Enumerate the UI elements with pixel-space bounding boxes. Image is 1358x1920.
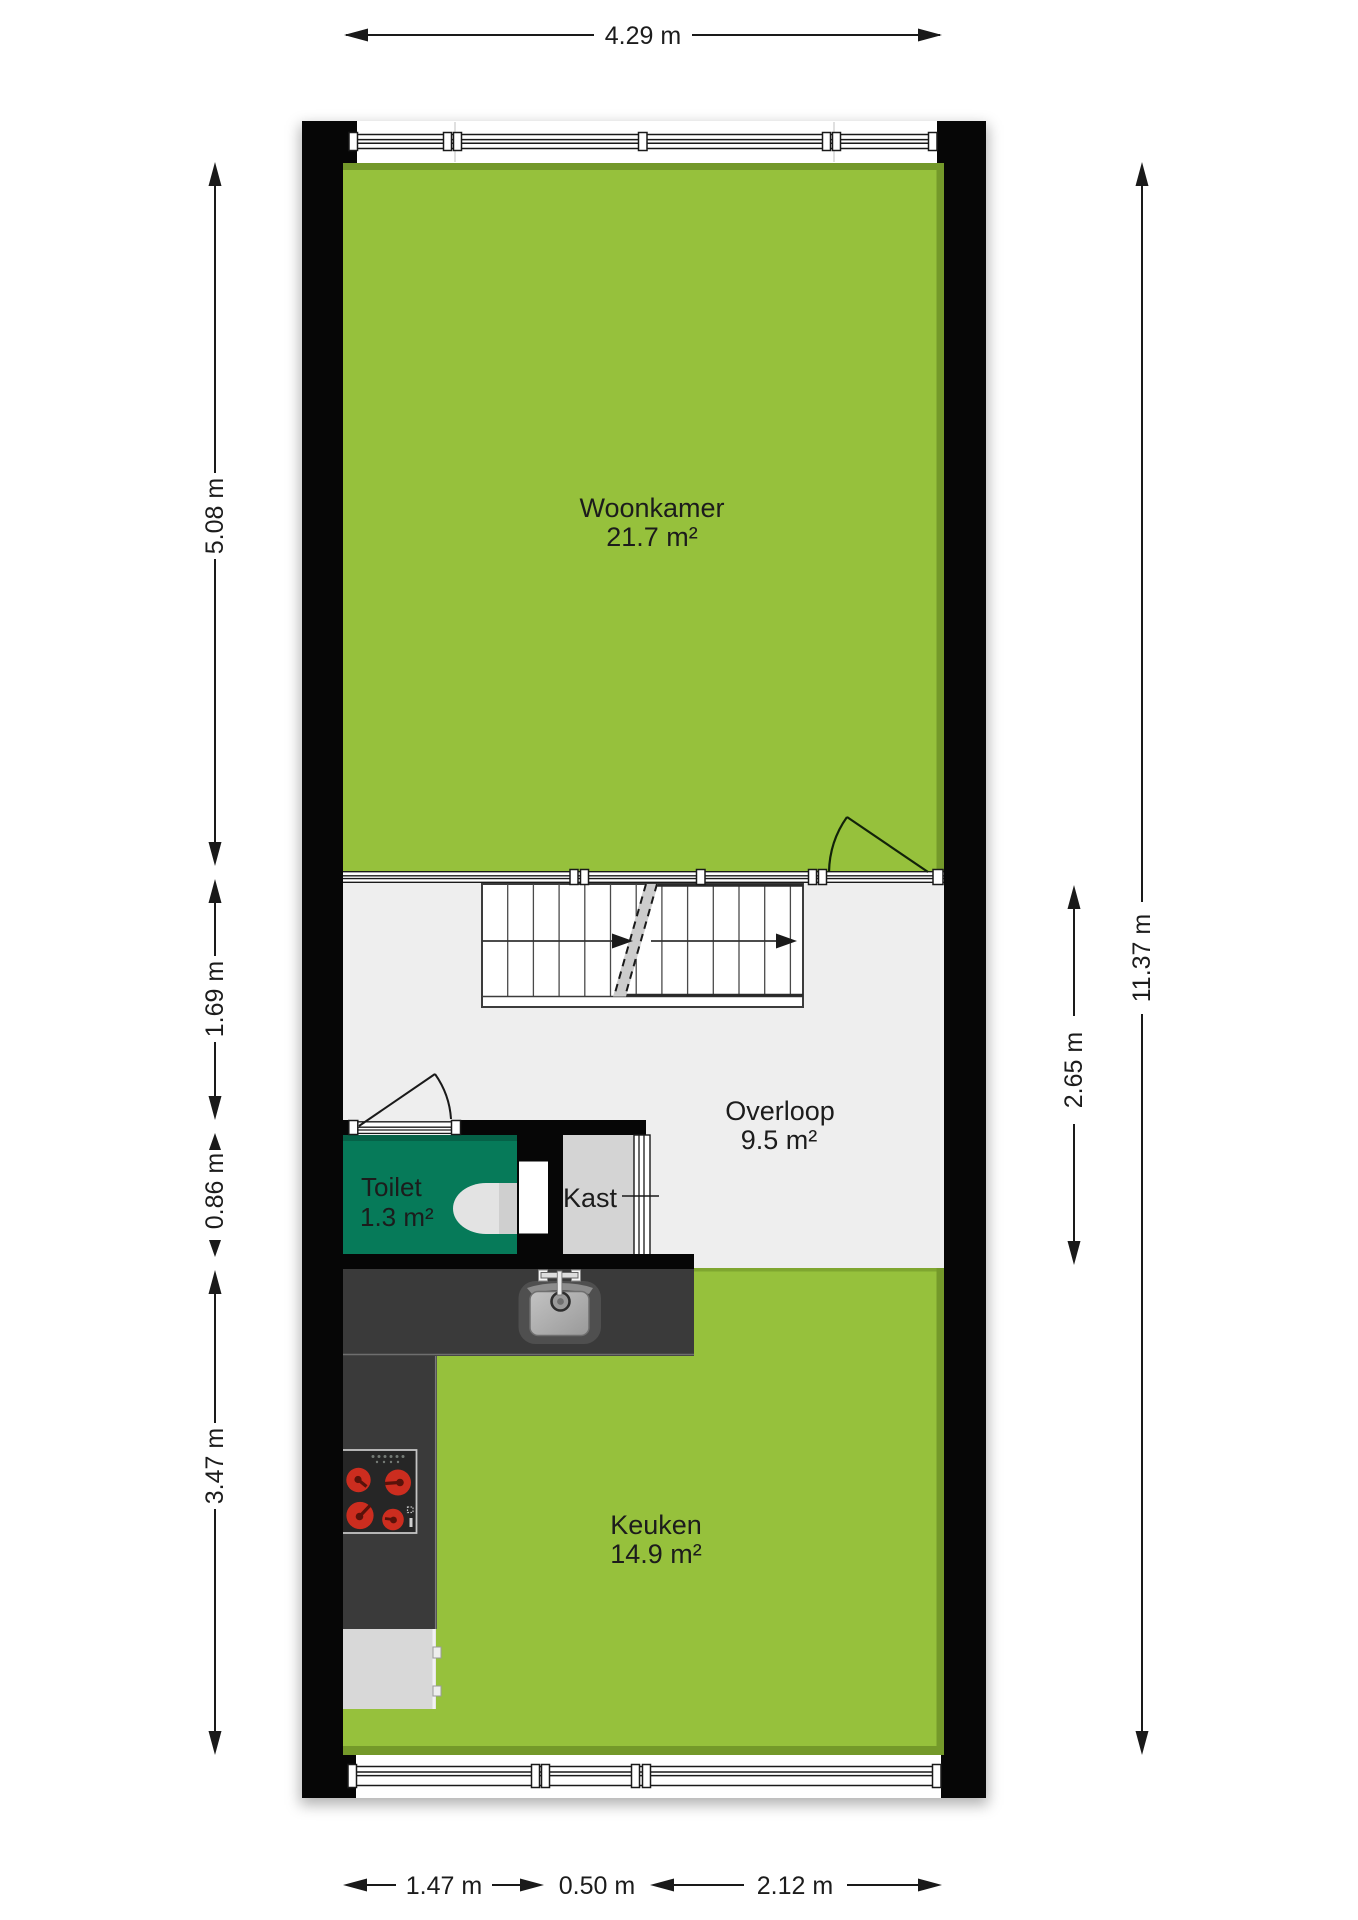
svg-text:Keuken: Keuken bbox=[610, 1510, 702, 1540]
svg-text:Woonkamer: Woonkamer bbox=[579, 493, 724, 523]
svg-text:3.47 m: 3.47 m bbox=[201, 1428, 229, 1504]
svg-text:5.08 m: 5.08 m bbox=[201, 478, 229, 554]
svg-text:4.29 m: 4.29 m bbox=[605, 22, 681, 50]
svg-text:0.50 m: 0.50 m bbox=[559, 1872, 635, 1900]
svg-text:Toilet: Toilet bbox=[361, 1172, 422, 1202]
svg-text:0.86 m: 0.86 m bbox=[201, 1153, 229, 1229]
svg-text:1.47 m: 1.47 m bbox=[406, 1872, 482, 1900]
svg-text:14.9 m²: 14.9 m² bbox=[610, 1539, 702, 1569]
svg-text:2.12 m: 2.12 m bbox=[757, 1872, 833, 1900]
svg-text:21.7 m²: 21.7 m² bbox=[606, 522, 698, 552]
svg-text:9.5 m²: 9.5 m² bbox=[741, 1125, 818, 1155]
svg-text:1.3 m²: 1.3 m² bbox=[360, 1202, 434, 1232]
svg-text:2.65 m: 2.65 m bbox=[1060, 1032, 1088, 1108]
svg-text:Overloop: Overloop bbox=[725, 1096, 835, 1126]
svg-text:11.37 m: 11.37 m bbox=[1128, 914, 1156, 1002]
svg-text:Kast: Kast bbox=[563, 1183, 618, 1213]
svg-text:1.69 m: 1.69 m bbox=[201, 961, 229, 1037]
